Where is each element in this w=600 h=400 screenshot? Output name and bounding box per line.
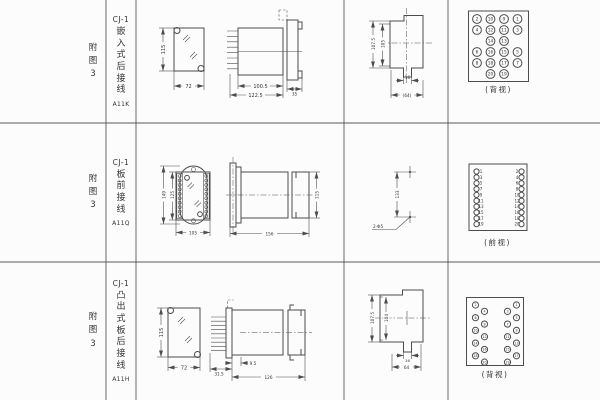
model-name: CJ-1 <box>113 15 130 24</box>
terminal-circle: 1 <box>516 17 519 23</box>
dim-104: 104 <box>384 314 389 322</box>
terminal-circle: 3 <box>516 28 519 34</box>
terminal-circle: 17 <box>501 61 507 67</box>
terminal-circle <box>519 181 524 186</box>
dim-115b: 115 <box>314 191 319 199</box>
terminal-circle: 12 <box>488 28 494 34</box>
row1-panel-cutout-drawing: 107.5 105 16 (64) <box>369 8 432 98</box>
terminal-circle: 13 <box>514 341 518 345</box>
terminal-circle: 20 <box>482 360 486 364</box>
terminal-circle <box>474 175 479 180</box>
dim-35: 35 <box>292 92 298 97</box>
vertical-char: 图 <box>89 55 98 68</box>
dim-107-5b: 107.5 <box>370 312 375 324</box>
vertical-char: 出 <box>116 302 125 314</box>
vertical-char: 式 <box>116 314 125 326</box>
terminal-circle: 15 <box>505 348 509 352</box>
vertical-char: 附 <box>89 311 98 324</box>
dim-72b: 72 <box>181 366 187 372</box>
terminal-circle: 9 <box>503 17 506 23</box>
dashed-clip <box>228 300 234 308</box>
terminal-circle: 7 <box>506 322 508 326</box>
glass-hatch-icon <box>183 35 190 42</box>
terminal-circle: 18 <box>514 216 520 221</box>
view-caption-row3: (背视) <box>465 369 525 380</box>
row3-front-view-drawing: 115 72 <box>157 308 201 372</box>
dim-31-5: 31.5 <box>214 372 224 377</box>
row2-terminal-block-front-view: 1357911131517192468101214161820 <box>469 164 527 231</box>
model-label-row2: CJ-1 板前接线 A11Q <box>106 123 136 262</box>
model-code: A11H <box>112 376 129 383</box>
vertical-char: 入 <box>116 39 125 51</box>
dim-125: 125 <box>170 191 175 199</box>
dim-9-5: 9.5 <box>250 361 257 366</box>
terminal-circle: 8 <box>476 61 479 67</box>
terminal-circle: 15 <box>478 210 484 215</box>
terminal-circle <box>519 210 524 215</box>
view-caption-row1: (背视) <box>468 84 529 95</box>
vertical-char: 线 <box>116 205 125 217</box>
vertical-char: 图 <box>89 324 98 337</box>
dim-126: 126 <box>265 375 273 380</box>
vertical-char: 3 <box>90 199 95 212</box>
terminal-circle: 17 <box>478 216 484 221</box>
dashed-clip <box>279 10 287 20</box>
terminal-circle <box>519 186 524 191</box>
terminal-circle: 5 <box>515 316 517 320</box>
model-label-row3: CJ-1 凸出式板后接线 A11H <box>106 262 136 400</box>
terminal-circle <box>519 175 524 180</box>
terminal-circle: 18 <box>473 354 477 358</box>
terminal-circle: 1 <box>515 303 517 307</box>
dim-115c: 115 <box>159 328 165 338</box>
terminal-circle: 3 <box>506 310 508 314</box>
terminal-circle: 13 <box>501 39 507 45</box>
terminal-circle <box>474 186 479 191</box>
row1-side-view-drawing: 100.5 122.5 35 <box>227 10 302 99</box>
terminal-circle: 4 <box>516 175 519 180</box>
terminal-circle <box>474 181 479 186</box>
vertical-char: 附 <box>89 42 98 55</box>
model-code: A11K <box>113 101 130 108</box>
terminal-circle: 19 <box>505 360 509 364</box>
terminal-circle: 11 <box>505 335 509 339</box>
terminal-circle: 6 <box>474 316 476 320</box>
vertical-char: 后 <box>116 62 125 74</box>
vertical-char: 线 <box>116 85 125 97</box>
dim-72: 72 <box>185 84 191 90</box>
terminal-circle: 20 <box>488 72 494 78</box>
terminal-circle: 5 <box>516 50 519 56</box>
terminal-circle: 2 <box>476 17 479 23</box>
dim-122-5: 122.5 <box>248 93 262 99</box>
terminal-circle <box>474 192 479 197</box>
dim-105: 105 <box>380 40 385 48</box>
vertical-char: 式 <box>116 50 125 62</box>
terminal-circle: 9 <box>515 329 517 333</box>
model-code: A11Q <box>112 220 130 227</box>
terminal-circle: 7 <box>480 187 483 192</box>
terminal-circle <box>474 169 479 174</box>
terminal-circle: 8 <box>483 322 485 326</box>
terminal-circle <box>519 198 524 203</box>
vertical-char: 后 <box>116 337 125 349</box>
terminal-circle <box>519 169 524 174</box>
model-label-row1: CJ-1 嵌入式后接线 A11K <box>106 0 136 123</box>
row2-front-view-drawing: 149 125 105 <box>160 166 210 236</box>
vertical-char: 图 <box>89 186 98 199</box>
terminal-circle: 10 <box>473 329 477 333</box>
dim-105b: 105 <box>189 231 197 236</box>
terminal-circle: 9 <box>480 192 483 197</box>
row3-panel-cutout-drawing: 107.5 104 16 64 <box>368 290 430 371</box>
terminal-circle <box>519 216 524 221</box>
glass-hatch-icon <box>178 317 185 324</box>
page: 115 72 100.5 122.5 35 <box>0 0 600 400</box>
vertical-char: 3 <box>90 338 95 351</box>
vertical-char: 接 <box>116 74 125 86</box>
row2-side-view-drawing: 115 156 <box>226 157 320 237</box>
dim-100-5: 100.5 <box>253 84 267 90</box>
dim-16b: 16 <box>405 358 410 363</box>
vertical-char: 前 <box>116 181 125 193</box>
terminal-circle: 14 <box>488 39 494 45</box>
terminal-circle: 14 <box>514 204 520 209</box>
row2-mounting-holes-drawing: 133 2-Φ5 <box>372 166 416 230</box>
terminal-circle: 16 <box>488 50 494 56</box>
terminal-circle: 17 <box>514 354 518 358</box>
mount-type-vertical-text: 嵌入式后接线 <box>116 27 125 97</box>
terminal-circle: 8 <box>516 187 519 192</box>
terminal-circle: 6 <box>516 181 519 186</box>
terminal-pins <box>227 31 238 69</box>
figure-label-row3: 附图3 <box>80 262 106 400</box>
terminal-circle: 10 <box>514 192 520 197</box>
mount-type-vertical-text: 板前接线 <box>116 170 125 217</box>
terminal-circle <box>519 222 524 227</box>
terminal-circle: 2 <box>516 169 519 174</box>
terminal-circle: 4 <box>476 28 479 34</box>
row3-side-view-drawing: 9.5 31.5 126 <box>210 300 312 381</box>
row3-terminal-block-back-view: 2468101214161820135791113151719 <box>467 298 524 366</box>
dim-64b: 64 <box>404 365 410 370</box>
terminal-circle: 18 <box>488 61 494 67</box>
terminal-circle: 16 <box>482 348 486 352</box>
glass-hatch-icon <box>185 336 192 343</box>
mount-type-vertical-text: 凸出式板后接线 <box>116 291 125 373</box>
vertical-char: 接 <box>116 349 125 361</box>
dim-64: (64) <box>403 93 412 98</box>
vertical-char: 板 <box>116 326 125 338</box>
dim-133: 133 <box>395 190 400 198</box>
figure-label-row2: 附图3 <box>80 123 106 262</box>
terminal-circle <box>519 192 524 197</box>
terminal-circle: 7 <box>516 61 519 67</box>
terminal-circle: 12 <box>482 335 486 339</box>
terminal-circle: 11 <box>501 28 507 34</box>
terminal-pins <box>211 317 226 351</box>
terminal-circle: 11 <box>478 198 484 203</box>
glass-hatch-icon <box>190 52 197 59</box>
row1-front-view-drawing: 115 72 <box>159 28 204 91</box>
terminal-circle: 19 <box>501 72 507 78</box>
terminal-circle: 6 <box>476 50 479 56</box>
dim-156: 156 <box>266 232 274 237</box>
mounting-hole <box>409 171 411 173</box>
terminal-circle: 16 <box>514 210 520 215</box>
terminal-circle: 5 <box>480 181 483 186</box>
vertical-char: 线 <box>116 361 125 373</box>
dim-107-5: 107.5 <box>371 38 376 50</box>
dim-149: 149 <box>161 191 166 199</box>
terminal-circle: 14 <box>473 341 477 345</box>
terminal-circle: 20 <box>514 222 520 227</box>
terminal-circle: 12 <box>514 198 520 203</box>
glass-hatch-icon <box>195 201 202 208</box>
terminal-circle: 13 <box>478 204 484 209</box>
glass-hatch-icon <box>188 183 195 190</box>
dim-16: 16 <box>405 75 411 80</box>
vertical-char: 凸 <box>116 291 125 303</box>
terminal-circle: 10 <box>488 17 494 23</box>
vertical-char: 3 <box>90 68 95 81</box>
vertical-char: 板 <box>116 170 125 182</box>
terminal-circle: 3 <box>480 175 483 180</box>
vertical-char: 嵌 <box>116 27 125 39</box>
figure-label-row1: 附图3 <box>80 0 106 123</box>
terminal-circle: 15 <box>501 50 507 56</box>
hole-spec-label: 2-Φ5 <box>373 224 383 229</box>
vertical-char: 附 <box>89 173 98 186</box>
vertical-char: 接 <box>116 193 125 205</box>
terminal-circle: 4 <box>483 310 485 314</box>
terminal-circle: 2 <box>474 303 476 307</box>
row1-terminal-block-back-view: 2109141211314136161558181772019 <box>469 11 529 82</box>
model-name: CJ-1 <box>113 279 130 288</box>
dim-115: 115 <box>161 45 167 55</box>
terminal-circle <box>519 204 524 209</box>
terminal-circle: 1 <box>480 169 483 174</box>
model-name: CJ-1 <box>113 158 130 167</box>
terminal-circle: 19 <box>478 222 484 227</box>
view-caption-row2: (前视) <box>468 237 527 248</box>
